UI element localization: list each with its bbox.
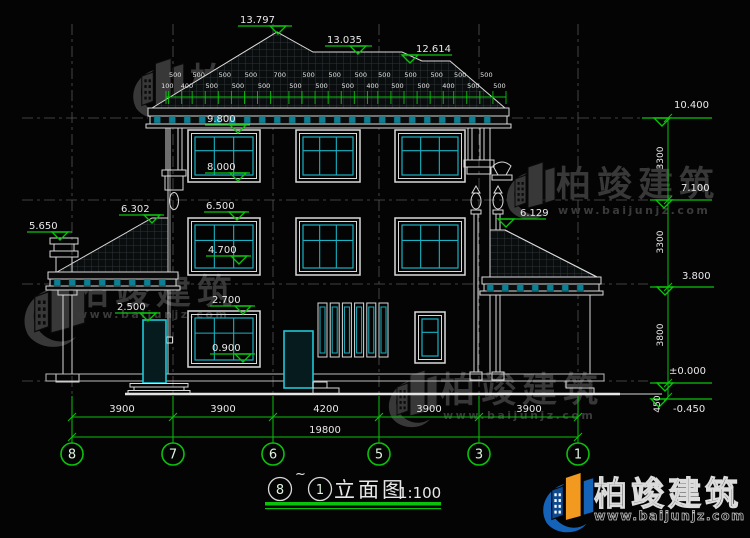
logo-building-window: [522, 188, 524, 191]
eave-dim-value: 500: [355, 71, 367, 79]
grid-bubbles-row: 8 7 6 5 3 1: [61, 443, 589, 465]
lamp-post-head: [493, 193, 503, 209]
elevation-value: 12.614: [416, 44, 451, 55]
rafter-tail-block: [319, 117, 326, 124]
louver-slat: [355, 303, 364, 357]
window-outer-frame: [395, 130, 465, 182]
eave-dim-value: 500: [315, 82, 327, 90]
window-inner-frame: [300, 222, 357, 272]
vase-ornament: [493, 162, 511, 175]
rafter-tail-block: [547, 285, 554, 292]
main-eave-trim: [146, 124, 511, 128]
louver-slat: [379, 303, 388, 357]
elevation-value: -0.450: [673, 404, 705, 415]
porch-eave-trim: [46, 286, 180, 290]
elevation-value: 2.700: [212, 295, 241, 306]
rafter-tail-block: [304, 117, 311, 124]
eave-dim-value: 100: [161, 82, 173, 90]
dim-label-4200: 4200: [313, 404, 338, 415]
logo-building-window: [43, 321, 46, 325]
chimney-neck: [54, 244, 74, 251]
rafter-tail-block: [244, 117, 251, 124]
porch-steps: [134, 387, 184, 391]
logo-building-window: [559, 499, 561, 502]
entry-steps: [313, 382, 327, 388]
eave-dim-value: 500: [219, 71, 231, 79]
eave-dim-value: 500: [258, 82, 270, 90]
title-underline-thin: [265, 508, 441, 509]
elevation-value: 10.400: [674, 100, 709, 111]
eave-dim-value: 500: [454, 71, 466, 79]
rafter-tail-block: [532, 285, 539, 292]
rafter-tail-block: [454, 117, 461, 124]
window-inner-frame: [300, 134, 357, 179]
eave-dim-value: 500: [391, 82, 403, 90]
grid-bubble-label: 7: [169, 448, 177, 463]
rafter-tail-block: [334, 117, 341, 124]
window: [395, 218, 465, 275]
grid-bubble-label: 5: [375, 448, 383, 463]
elevation-marker-triangle: [52, 232, 68, 240]
eave-dim-value: 500: [289, 82, 301, 90]
rafter-tail-block: [349, 117, 356, 124]
eave-dim-value: 500: [430, 71, 442, 79]
logo-building-window: [404, 407, 406, 410]
rafter-tail-block: [469, 117, 476, 124]
eave-dim-value: 500: [404, 71, 416, 79]
rafter-tail-block: [154, 117, 161, 124]
logo-building-window: [38, 301, 41, 305]
dim-label-3900: 3900: [416, 404, 441, 415]
window-outer-frame: [296, 218, 360, 275]
logo-building-main: [565, 472, 581, 520]
rafter-tail-block: [274, 117, 281, 124]
elevation-drawing-canvas: 柏竣建筑 www.baijunjz.com 柏竣建筑 www.baijunjz.…: [0, 0, 750, 538]
rafter-tail-block: [159, 280, 166, 287]
louver-slat-glass: [320, 307, 325, 353]
logo-building-window: [144, 85, 146, 88]
logo-building-window: [518, 199, 520, 202]
elevation-value: 5.650: [29, 221, 58, 232]
logo-building-window: [149, 91, 151, 94]
rafter-tail-block: [502, 285, 509, 292]
elevation-marker: 13.797: [238, 15, 292, 34]
lamp-post-capital: [493, 210, 503, 214]
rafter-tail-block: [144, 280, 151, 287]
logo-building-window: [43, 314, 46, 318]
elevation-marker-triangle: [229, 212, 245, 220]
elevation-value: 7.100: [681, 183, 710, 194]
elevation-value: 8.000: [207, 162, 236, 173]
logo-building-window: [404, 390, 406, 393]
elevation-value: 13.035: [327, 35, 362, 46]
louver-window-group: [318, 303, 388, 357]
title-underline-thick: [265, 502, 441, 506]
window: [188, 130, 260, 182]
vase-pedestal: [492, 175, 512, 180]
logo-building-back: [515, 175, 526, 207]
watermark-logo-icon: [389, 370, 437, 427]
logo-building-window: [559, 505, 561, 508]
cad-elevation-screenshot: 柏竣建筑 www.baijunjz.com 柏竣建筑 www.baijunjz.…: [0, 0, 750, 538]
rafter-tail-block: [114, 280, 121, 287]
elevation-value: ±0.000: [669, 366, 706, 377]
elevation-value: 6.500: [206, 201, 235, 212]
logo-building-window: [43, 301, 46, 305]
logo-building-back: [552, 486, 564, 520]
logo-building-window: [144, 97, 146, 100]
elevation-marker: 6.500: [204, 201, 249, 220]
dim-label-3900: 3900: [210, 404, 235, 415]
downspout-bracket: [167, 337, 173, 343]
louver-slat-glass: [381, 307, 386, 353]
elevation-marker-triangle: [657, 383, 673, 391]
drawing-title-block: 8 ~ 1 立面图 1:100: [265, 467, 441, 509]
window: [296, 218, 360, 275]
eave-dim-value: 500: [192, 71, 204, 79]
window-outer-frame: [296, 130, 360, 182]
rafter-tail-block: [562, 285, 569, 292]
louver-slat: [330, 303, 339, 357]
logo-building-window: [400, 396, 402, 399]
elevation-marker: 5.650: [27, 221, 72, 240]
pilaster-left-shaft: [178, 128, 182, 170]
eave-dim-value: 500: [232, 82, 244, 90]
elevation-marker: 13.035: [325, 35, 372, 54]
dim-label-3900: 3900: [109, 404, 134, 415]
window-outer-frame: [415, 312, 445, 363]
chain-dim-label: 3300: [656, 230, 666, 253]
logo-building-window: [38, 321, 41, 325]
title-scale: 1:100: [398, 484, 441, 502]
elevation-value: 9.800: [207, 114, 236, 125]
logo-building-window: [404, 396, 406, 399]
grid-bubble-label: 1: [574, 448, 582, 463]
elevation-value: 0.900: [212, 343, 241, 354]
louver-slat: [342, 303, 351, 357]
window-outer-frame: [188, 130, 260, 182]
pilaster-right-shaft: [480, 128, 484, 160]
logo-building-window: [554, 505, 556, 508]
logo-building-right: [545, 167, 555, 203]
rafter-tail-block: [259, 117, 266, 124]
logo-building-window: [522, 182, 524, 185]
logo-building-main: [528, 162, 543, 208]
pilaster-left-capital: [162, 170, 186, 176]
rafter-tail-block: [129, 280, 136, 287]
louver-slat: [367, 303, 376, 357]
rafter-tail-block: [517, 285, 524, 292]
rafter-tail-block: [69, 280, 76, 287]
eave-dim-value: 500: [302, 71, 314, 79]
watermark-bottom-center: 柏竣建筑 www.baijunjz.com: [389, 370, 604, 427]
elevation-marker: 0.900: [210, 343, 255, 362]
logo-building-window: [400, 390, 402, 393]
elevation-value: 4.700: [208, 245, 237, 256]
watermark-url-text: www.baijunjz.com: [558, 204, 710, 217]
window-inner-frame: [192, 315, 257, 364]
louver-slat-glass: [332, 307, 337, 353]
rafter-tail-block: [439, 117, 446, 124]
eave-dim-value: 500: [342, 82, 354, 90]
logo-building-window: [144, 79, 146, 82]
window-glass-frame: [303, 225, 353, 268]
porch-door: [143, 320, 166, 383]
louver-slat: [318, 303, 327, 357]
logo-building-window: [559, 493, 561, 496]
rafter-tail-block: [577, 285, 584, 292]
eave-dim-value: 500: [480, 71, 492, 79]
pilaster-right-shaft: [468, 128, 472, 160]
elevation-marker-triangle: [657, 287, 673, 295]
rafter-tail-block: [54, 280, 61, 287]
logo-building-window: [554, 499, 556, 502]
window-glass-frame: [402, 137, 458, 175]
eave-dim-value: 500: [169, 71, 181, 79]
logo-building-window: [522, 199, 524, 202]
elevation-value: 13.797: [240, 15, 275, 26]
lamp-post-head: [471, 193, 481, 209]
porch-steps: [130, 384, 188, 388]
title-text: 立面图: [334, 478, 406, 502]
title-bubble-1-label: 1: [316, 483, 324, 498]
eave-dim-value: 500: [206, 82, 218, 90]
chain-dim-label: 3800: [656, 323, 666, 346]
logo-building-window: [149, 85, 151, 88]
rafter-tail-block: [84, 280, 91, 287]
chain-dim-label: 3300: [656, 146, 666, 169]
rafter-tail-block: [484, 117, 491, 124]
grid-bubble-label: 8: [68, 448, 76, 463]
elevation-marker-triangle: [230, 173, 246, 181]
rafter-tail-block: [364, 117, 371, 124]
brand-logo-url: www.baijunjz.com: [594, 508, 746, 523]
rafter-tail-block: [169, 117, 176, 124]
eave-dim-value: 500: [245, 71, 257, 79]
rafter-tail-block: [409, 117, 416, 124]
logo-building-window: [144, 91, 146, 94]
eave-dim-value: 500: [467, 82, 479, 90]
elevation-value: 6.302: [121, 204, 150, 215]
eave-dim-value: 500: [493, 82, 505, 90]
dim-label-3900: 3900: [516, 404, 541, 415]
elevation-marker: 3.800: [650, 271, 714, 295]
logo-building-window: [518, 193, 520, 196]
right-annex-eave-trim: [480, 291, 603, 295]
chain-dim-label: 450: [653, 395, 663, 412]
logo-building-window: [400, 407, 402, 410]
logo-building-window: [149, 79, 151, 82]
logo-building-window: [554, 511, 556, 514]
window-glass-frame: [402, 225, 458, 268]
louver-slat-glass: [369, 307, 374, 353]
window-inner-frame: [399, 134, 462, 179]
lamp-post-finial: [494, 186, 502, 193]
rafter-tail-block: [487, 285, 494, 292]
logo-building-window: [522, 193, 524, 196]
rafter-tail-block: [289, 117, 296, 124]
eave-dim-value: 700: [274, 71, 286, 79]
louver-slat-glass: [344, 307, 349, 353]
eave-dim-value: 400: [366, 82, 378, 90]
rafter-tail-block: [184, 117, 191, 124]
logo-building-right: [583, 478, 594, 516]
logo-building-window: [149, 97, 151, 100]
elevation-marker: 6.129: [498, 208, 549, 227]
main-eave-fascia: [148, 108, 509, 116]
elevation-marker: 10.400: [642, 100, 712, 126]
window-glass-frame: [303, 137, 353, 175]
logo-building-window: [554, 493, 556, 496]
rafter-tail-block: [199, 117, 206, 124]
logo-building-window: [43, 307, 46, 311]
elevation-value: 2.500: [117, 302, 146, 313]
eave-dim-value: 400: [181, 82, 193, 90]
rafter-tail-block: [424, 117, 431, 124]
rafter-tail-block: [99, 280, 106, 287]
chimney-cap: [50, 238, 78, 244]
window: [296, 130, 360, 182]
eave-dim-value: 500: [378, 71, 390, 79]
elevation-marker-triangle: [235, 354, 251, 362]
window: [415, 312, 445, 363]
logo-building-window: [38, 314, 41, 318]
eave-dim-value: 500: [328, 71, 340, 79]
right-annex-roof: [490, 230, 597, 277]
porch-eave-fascia: [48, 272, 178, 279]
logo-building-window: [38, 307, 41, 311]
eave-dim-value: 400: [442, 82, 454, 90]
elevation-value: 6.129: [520, 208, 549, 219]
elevation-value: 3.800: [682, 271, 711, 282]
grid-bubble-label: 6: [269, 448, 277, 463]
window-inner-frame: [399, 222, 462, 272]
dim-label-total-19800: 19800: [309, 425, 341, 436]
title-tilde: ~: [295, 467, 306, 482]
elevation-marker: 4.700: [206, 245, 251, 264]
logo-building-window: [404, 401, 406, 404]
window-glass-frame: [422, 319, 438, 356]
logo-building-back: [397, 383, 408, 415]
logo-building-window: [518, 188, 520, 191]
brand-logo-block: 柏竣建筑 www.baijunjz.com: [543, 472, 745, 532]
window: [395, 130, 465, 182]
logo-building-window: [559, 511, 561, 514]
logo-building-back: [142, 72, 154, 106]
eave-dim-value: 500: [417, 82, 429, 90]
rafter-tail-block: [379, 117, 386, 124]
elevation-marker: ±0.000: [650, 366, 712, 391]
logo-building-window: [518, 182, 520, 185]
brand-logo-icon: [543, 472, 594, 532]
pilaster-left-niche: [170, 193, 179, 210]
main-entry-door: [284, 331, 313, 388]
louver-slat-glass: [357, 307, 362, 353]
right-annex-eave-fascia: [482, 277, 601, 284]
rafter-tail-block: [394, 117, 401, 124]
logo-building-window: [400, 401, 402, 404]
grid-bubble-label: 3: [475, 448, 483, 463]
window-outer-frame: [395, 218, 465, 275]
logo-building-back: [35, 292, 49, 332]
lamp-post-shaft: [474, 214, 478, 372]
lamp-post-capital: [471, 210, 481, 214]
chimney-band: [50, 251, 78, 257]
title-bubble-8-label: 8: [276, 483, 284, 498]
